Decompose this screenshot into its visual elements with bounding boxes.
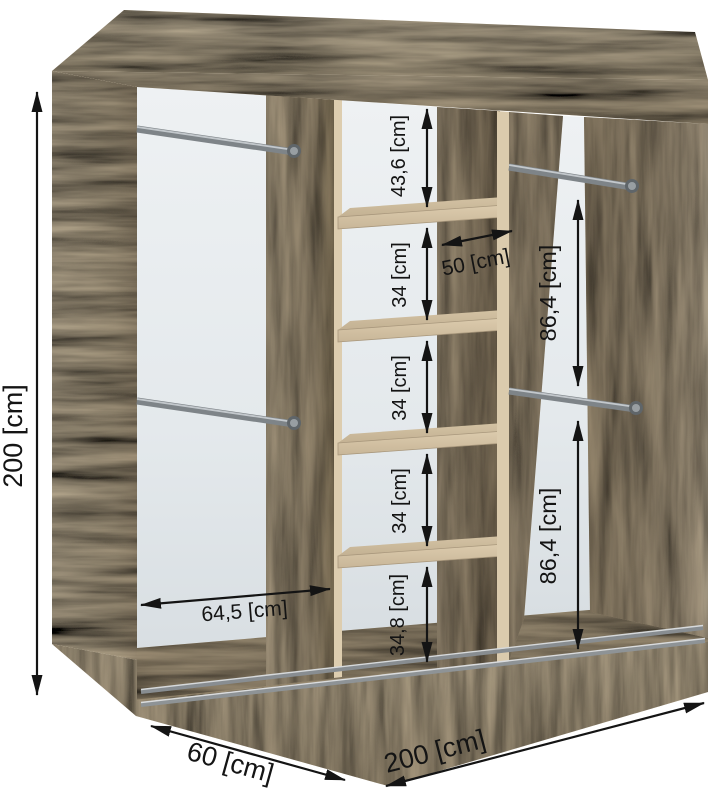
dim-height-label: 200 [cm] [0, 384, 28, 488]
dim-mid-section-3-label: 34 [cm] [389, 355, 411, 421]
dim-mid-section-2-label: 34 [cm] [389, 242, 411, 308]
right-side-wall [584, 117, 708, 638]
dim-right-upper-label: 86,4 [cm] [535, 245, 561, 342]
dim-mid-section-1-label: 43,6 [cm] [388, 115, 410, 197]
wardrobe-dimension-diagram: 200 [cm] 200 [cm] 60 [cm] 64,5 [cm] 50 [… [0, 0, 712, 791]
diagram-canvas: 200 [cm] 200 [cm] 60 [cm] 64,5 [cm] 50 [… [0, 0, 712, 791]
back-panel-left [137, 86, 267, 656]
left-side-panel [52, 71, 137, 660]
dim-mid-section-4-label: 34 [cm] [389, 468, 411, 534]
divider-right-face [437, 107, 500, 670]
divider-right-front-edge [497, 111, 509, 663]
dim-mid-section-5-label: 34,8 [cm] [387, 574, 409, 656]
top-panel-surface [52, 10, 708, 80]
divider-left-front-edge [334, 100, 342, 678]
dim-right-lower-label: 86,4 [cm] [535, 488, 561, 585]
